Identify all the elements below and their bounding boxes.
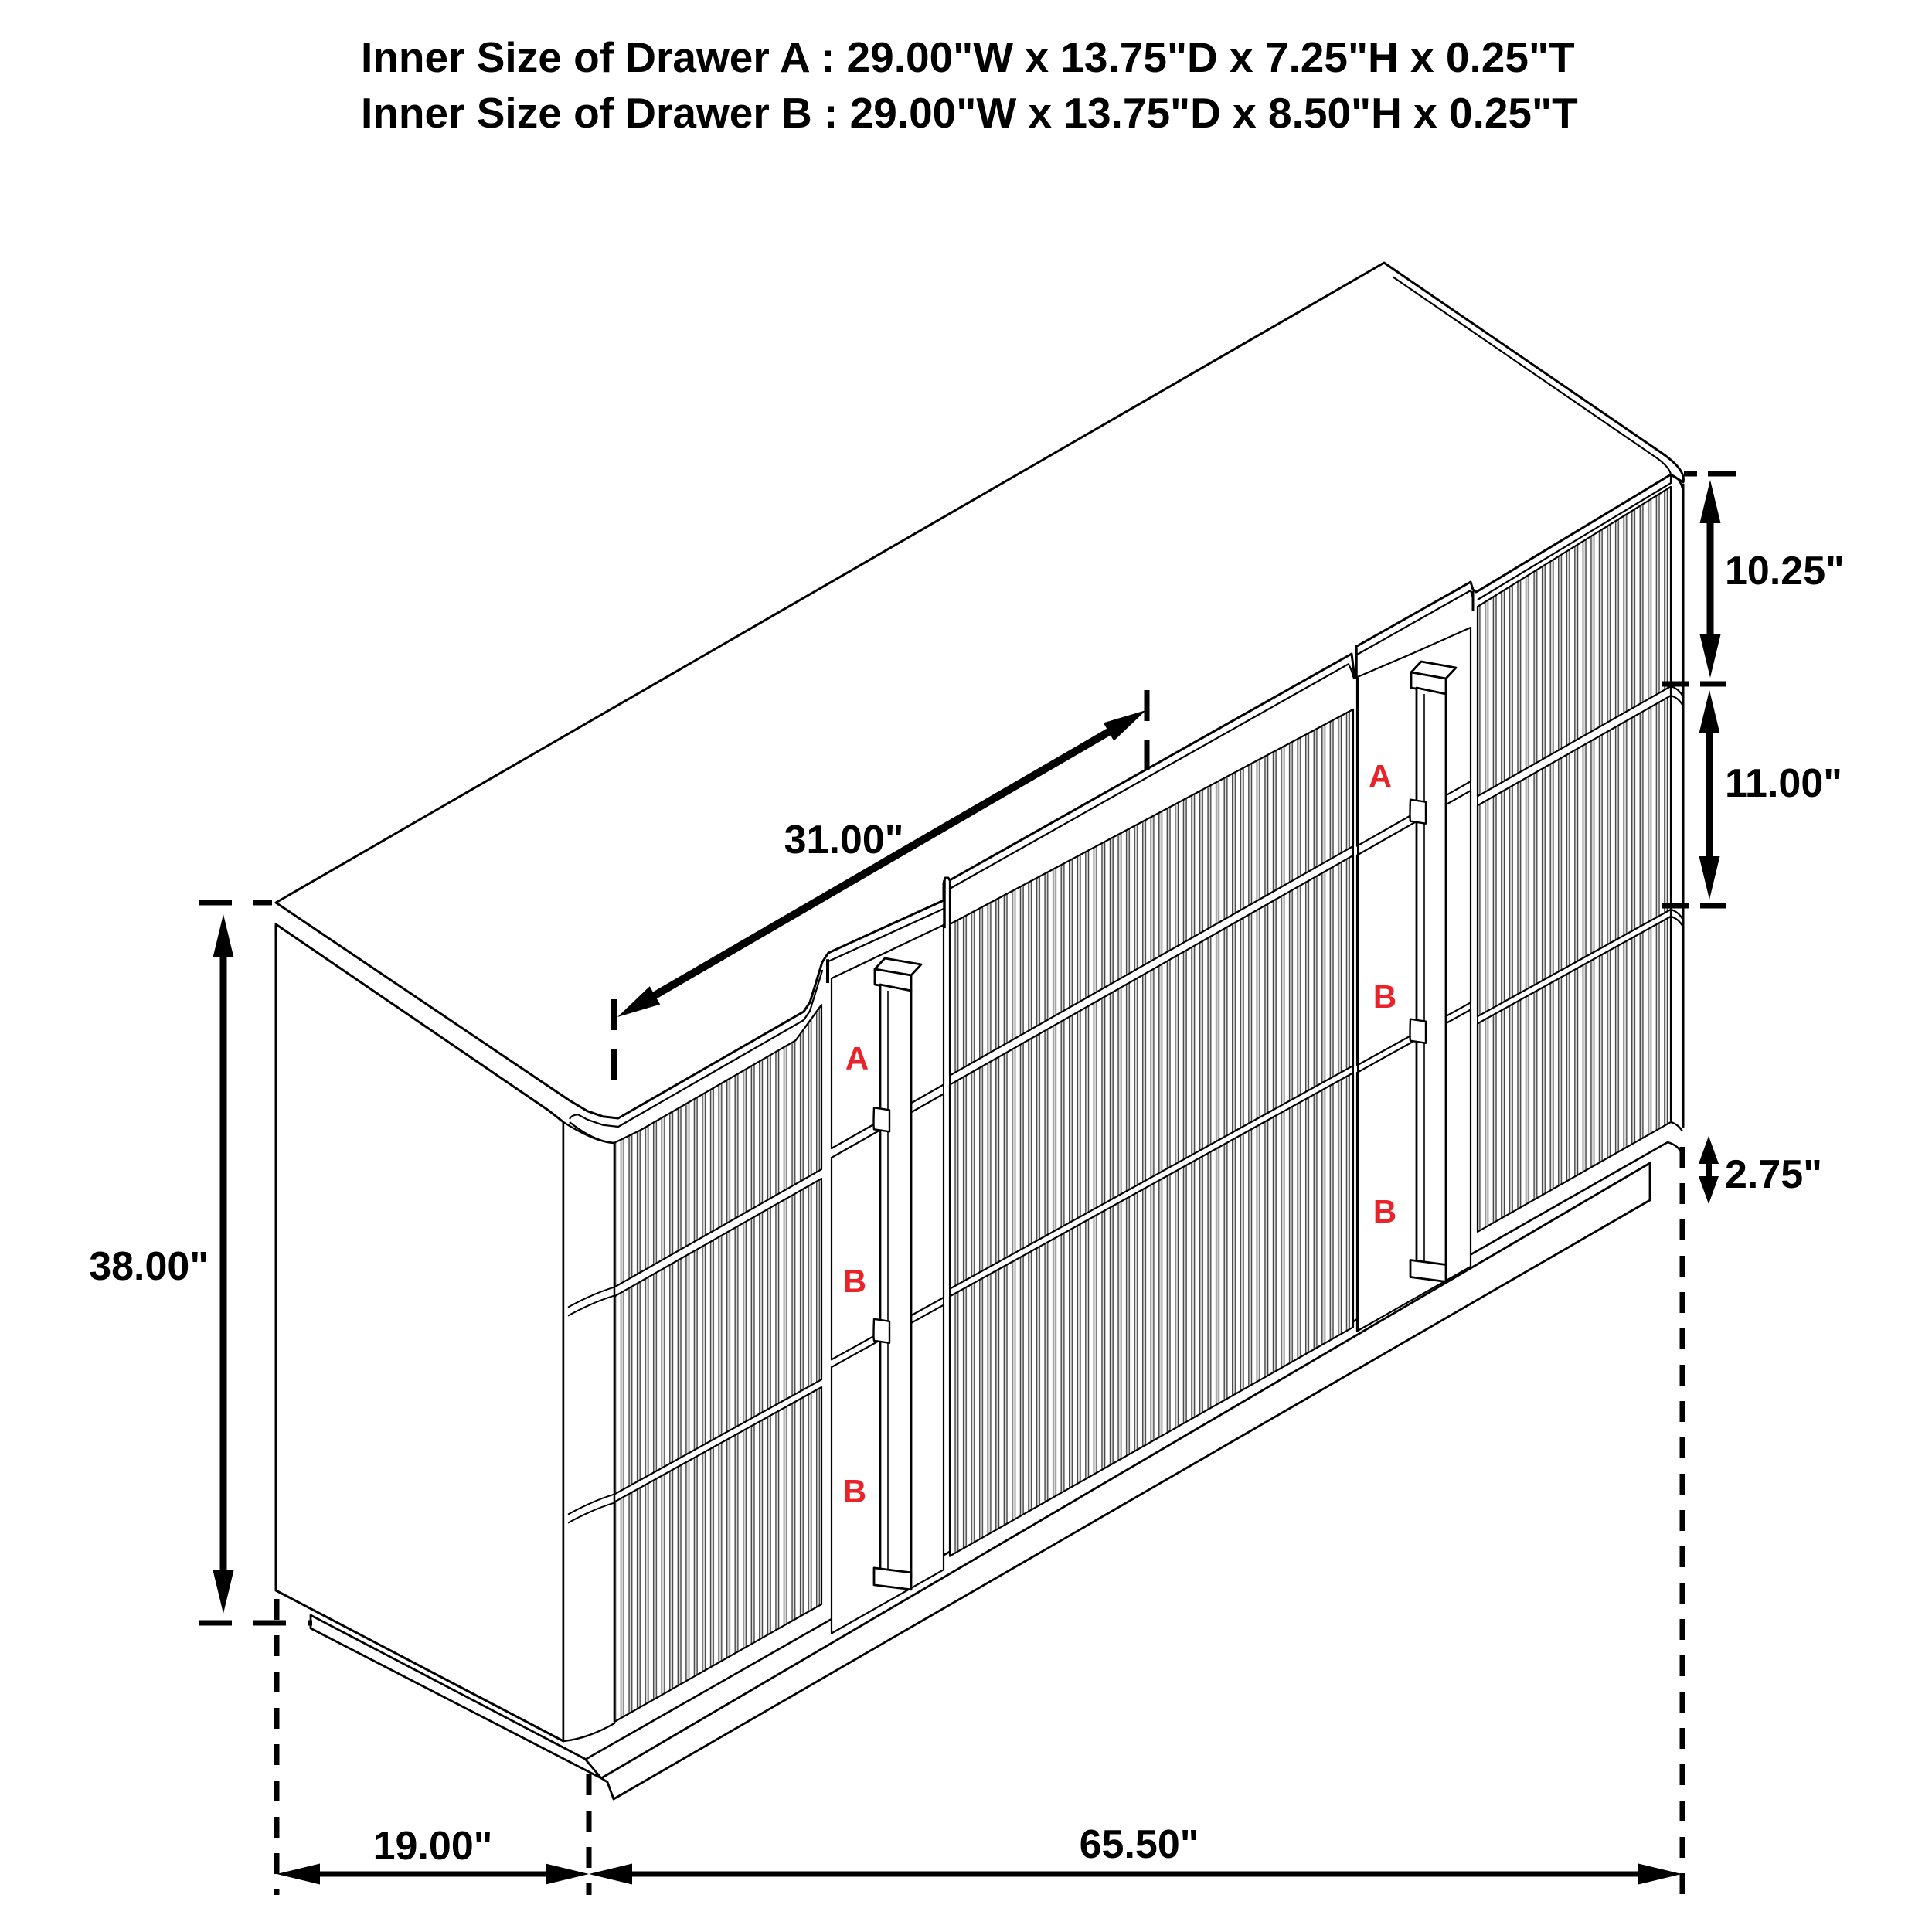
svg-text:2.75": 2.75" (1725, 1152, 1822, 1197)
svg-text:11.00": 11.00" (1725, 761, 1842, 806)
svg-text:B: B (843, 1263, 866, 1299)
svg-text:A: A (1369, 758, 1392, 794)
svg-text:19.00": 19.00" (373, 1824, 493, 1869)
svg-text:65.50": 65.50" (1080, 1822, 1199, 1867)
svg-text:B: B (1373, 1193, 1396, 1230)
svg-text:Inner Size of Drawer A : 29.00: Inner Size of Drawer A : 29.00"W x 13.75… (361, 33, 1575, 81)
svg-text:B: B (843, 1473, 866, 1509)
svg-text:B: B (1373, 978, 1396, 1015)
svg-text:Inner Size of Drawer B : 29.00: Inner Size of Drawer B : 29.00"W x 13.75… (361, 89, 1578, 137)
svg-text:38.00": 38.00" (89, 1244, 209, 1289)
svg-text:A: A (845, 1040, 869, 1077)
svg-text:10.25": 10.25" (1725, 549, 1845, 594)
svg-text:31.00": 31.00" (784, 818, 904, 862)
